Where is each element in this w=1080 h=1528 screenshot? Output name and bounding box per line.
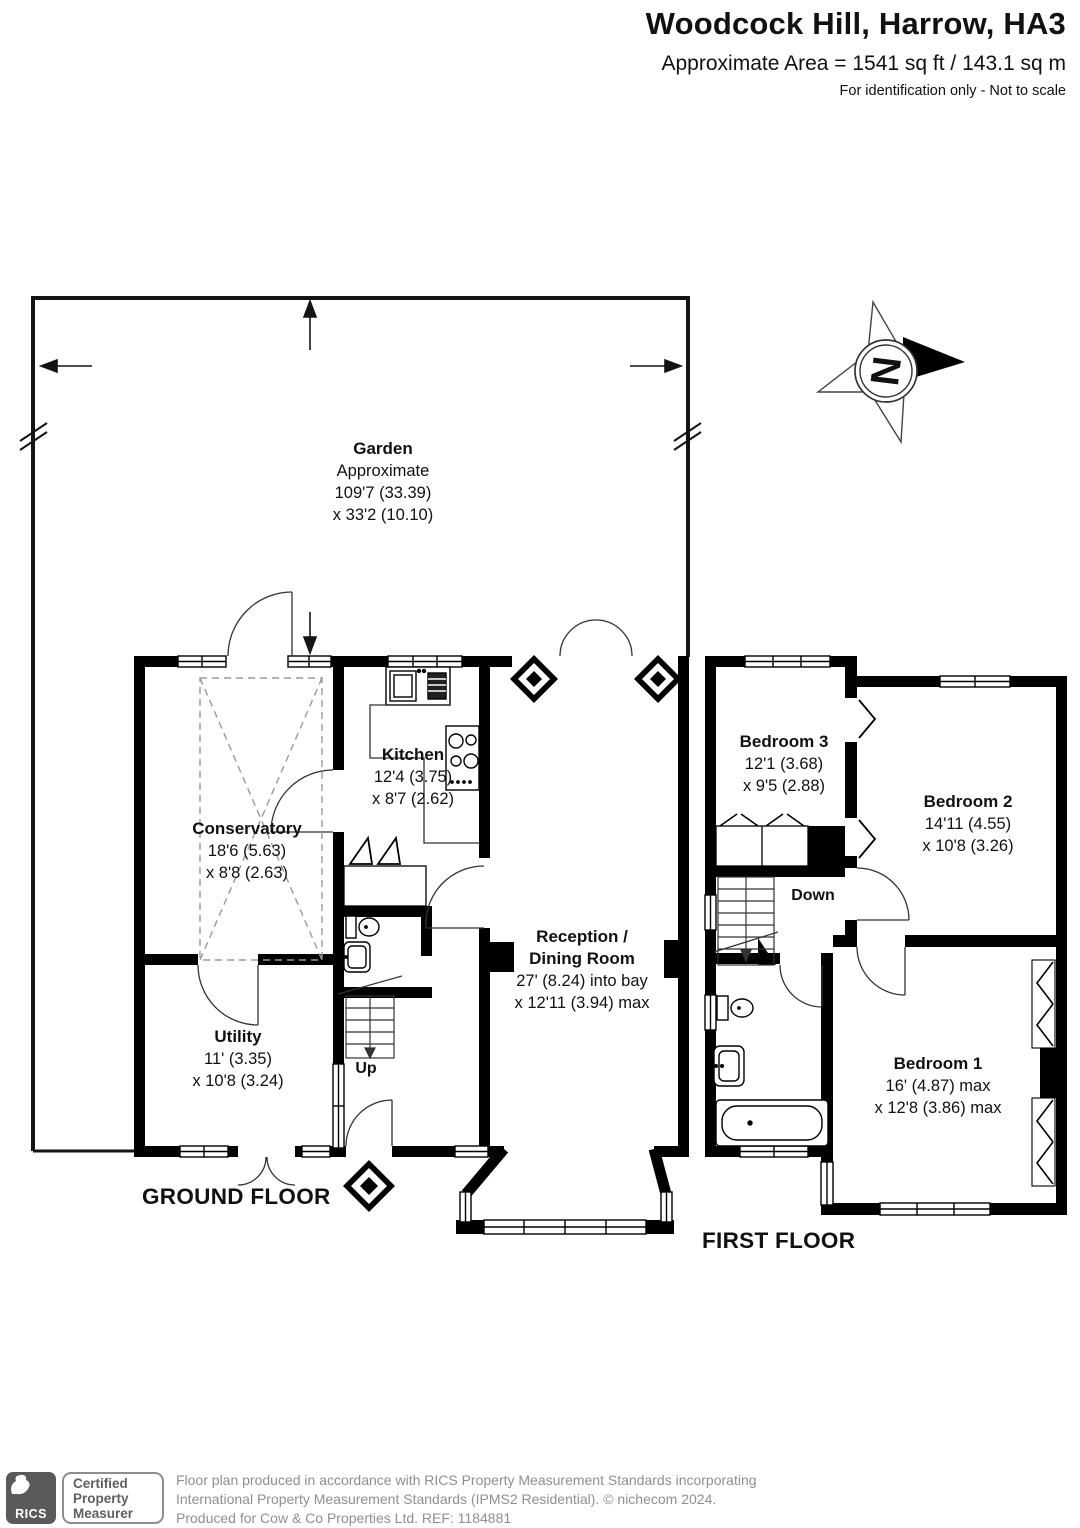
first-floor-label: FIRST FLOOR [702, 1228, 855, 1254]
bedroom2-wardrobe-doors [859, 700, 875, 858]
window [180, 1146, 228, 1157]
stairs-down-label: Down [791, 887, 835, 905]
garden-label: Garden Approximate 109'7 (33.39) x 33'2 … [333, 438, 433, 526]
compass-north-label: N [861, 354, 908, 388]
cupboard [344, 838, 426, 906]
kitchen-sink-icon [386, 667, 450, 705]
wc-sink-icon [344, 942, 370, 972]
window [333, 1064, 344, 1148]
sink-icon [714, 1046, 744, 1086]
footer-line-1: Floor plan produced in accordance with R… [176, 1471, 757, 1490]
window [745, 656, 830, 667]
compass-icon: N [818, 302, 965, 442]
bathtub-icon [716, 1100, 828, 1146]
footer: RICS Certified Property Measurer Floor p… [0, 1466, 1080, 1528]
header: Woodcock Hill, Harrow, HA3 Approximate A… [646, 6, 1066, 99]
window [455, 1146, 488, 1157]
window [705, 895, 716, 930]
window [302, 1146, 330, 1157]
area-subtitle: Approximate Area = 1541 sq ft / 143.1 sq… [646, 52, 1066, 76]
rics-lion-icon [6, 1472, 34, 1498]
bay-window-walls [466, 1149, 666, 1194]
stairs-up-label: Up [355, 1060, 376, 1078]
kitchen-label: Kitchen 12'4 (3.75) x 8'7 (2.62) [372, 744, 454, 810]
bedroom2-label: Bedroom 2 14'11 (4.55) x 10'8 (3.26) [922, 791, 1013, 857]
utility-label: Utility 11' (3.35) x 10'8 (3.24) [192, 1026, 283, 1092]
conservatory-label: Conservatory 18'6 (5.63) x 8'8 (2.63) [192, 818, 302, 884]
rics-label: RICS [15, 1508, 47, 1520]
bedroom1-label: Bedroom 1 16' (4.87) max x 12'8 (3.86) m… [875, 1053, 1002, 1119]
window [740, 1146, 808, 1157]
bay-window [661, 1192, 672, 1222]
floorplan-drawing: N [0, 0, 1080, 1528]
rics-logo: RICS [6, 1472, 56, 1524]
footer-text: Floor plan produced in accordance with R… [176, 1471, 757, 1528]
window [288, 656, 331, 667]
floorplan-page: N [0, 0, 1080, 1528]
window [705, 995, 716, 1030]
garden-outline [20, 298, 701, 1151]
footer-line-3: Produced for Cow & Co Properties Ltd. RE… [176, 1509, 757, 1528]
wc-toilet-icon [346, 916, 379, 938]
page-title: Woodcock Hill, Harrow, HA3 [646, 6, 1066, 42]
window [388, 656, 462, 667]
bay-window [460, 1192, 471, 1222]
certified-measurer-badge: Certified Property Measurer [62, 1472, 164, 1524]
window [821, 1162, 833, 1205]
stairs-down [714, 877, 778, 965]
bay-window [484, 1220, 646, 1234]
corner-glazing-icon [510, 655, 682, 703]
bedroom3-label: Bedroom 3 12'1 (3.68) x 9'5 (2.88) [740, 731, 829, 797]
ground-floor-label: GROUND FLOOR [142, 1184, 331, 1210]
bedroom3-wardrobes [716, 814, 808, 866]
reception-label: Reception / Dining Room 27' (8.24) into … [515, 926, 650, 1014]
window [940, 676, 1010, 687]
disclaimer-note: For identification only - Not to scale [646, 83, 1066, 99]
window [178, 656, 226, 667]
window [880, 1203, 990, 1215]
footer-line-2: International Property Measurement Stand… [176, 1490, 757, 1509]
toilet-icon [717, 996, 753, 1020]
porch-canopy-icon [343, 1160, 395, 1212]
